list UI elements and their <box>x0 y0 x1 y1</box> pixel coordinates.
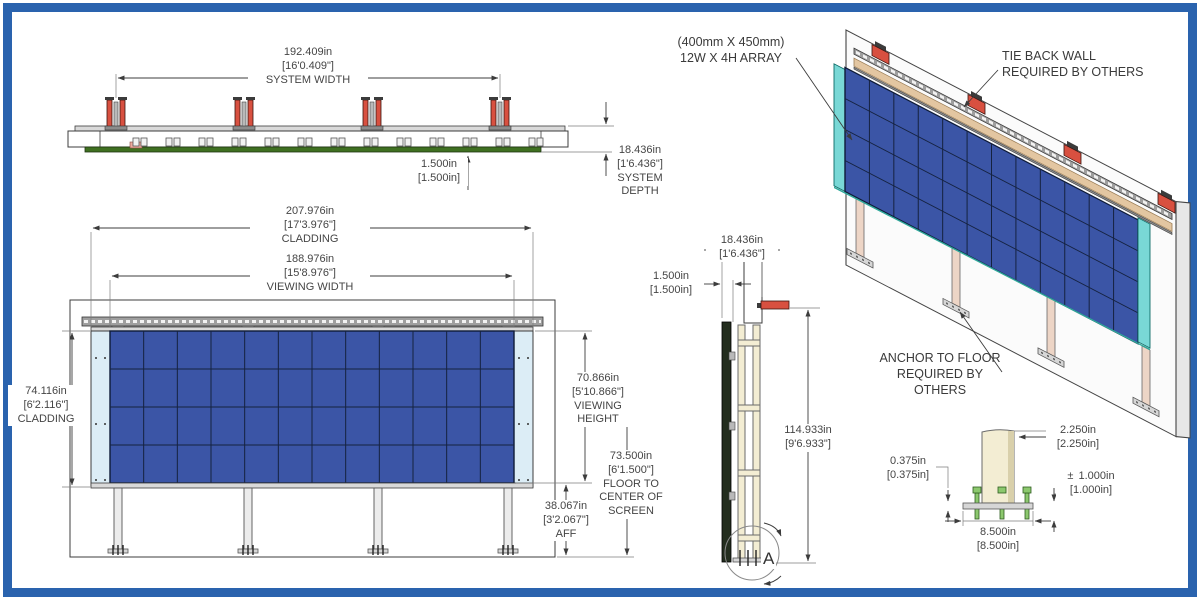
array-note: (400mm X 450mm) 12W X 4H ARRAY <box>668 34 794 66</box>
tieback-bracket <box>761 301 789 309</box>
side-view <box>704 244 820 584</box>
anchor-bolt <box>998 487 1006 493</box>
dim-aff: 38.067in [3'2.067"] AFF <box>532 500 600 541</box>
bottom-rail <box>91 483 533 488</box>
dim-overall-height: 114.933in [9'6.933"] <box>772 424 844 452</box>
callout-arrow-top <box>764 523 781 536</box>
anchor-bolt <box>1023 487 1031 493</box>
tieback-note: TIE BACK WALL REQUIRED BY OTHERS <box>1002 48 1162 80</box>
dim-system-depth: 18.436in [1'6.436"] SYSTEM DEPTH <box>612 144 668 199</box>
wall-brackets <box>105 97 511 130</box>
dim-system-width: 192.409in [16'0.409"] SYSTEM WIDTH <box>248 46 368 87</box>
frame-post-front <box>738 325 745 561</box>
dim-viewing-width: 188.976in [15'8.976"] VIEWING WIDTH <box>250 253 370 294</box>
wall-edge-face <box>1176 196 1190 444</box>
dim-top-offset: 1.500in [1.500in] <box>410 158 468 186</box>
anchor-note: ANCHOR TO FLOOR REQUIRED BY OTHERS <box>870 350 1010 398</box>
dim-cladding-height: 74.116in [6'2.116"] CLADDING <box>8 385 84 426</box>
dim-side-depth: 18.436in [1'6.436"] <box>706 234 778 262</box>
cladding-right <box>514 331 533 487</box>
dim-side-offset: 1.500in [1.500in] <box>642 270 700 298</box>
dim-plate-width: 8.500in [8.500in] <box>962 526 1034 554</box>
dim-floor-to-center: 73.500in [6'1.500"] FLOOR TO CENTER OF S… <box>596 450 666 519</box>
detail-marker-a: A <box>761 549 776 569</box>
dim-plate-thickness: 0.375in [0.375in] <box>880 455 936 483</box>
dim-post-depth: 2.250in [2.250in] <box>1046 424 1110 452</box>
dim-viewing-height: 70.866in [5'10.866"] VIEWING HEIGHT <box>562 372 634 427</box>
anchor-bolt <box>973 487 981 493</box>
dim-cladding-width: 207.976in [17'3.976"] CLADDING <box>250 205 370 246</box>
screen-edge-strip <box>85 147 541 152</box>
callout-arrow-bottom <box>764 576 781 584</box>
cladding-top-edge <box>744 255 762 323</box>
mount-rail <box>82 317 543 326</box>
top-view <box>68 74 614 190</box>
iso-cladding-right <box>1138 218 1150 348</box>
cladding-left <box>91 331 110 487</box>
detail-view-a <box>934 430 1060 532</box>
dim-bolt-projection: ±1.000in [1.000in] <box>1056 470 1126 498</box>
anchor-base-plate <box>963 503 1033 509</box>
